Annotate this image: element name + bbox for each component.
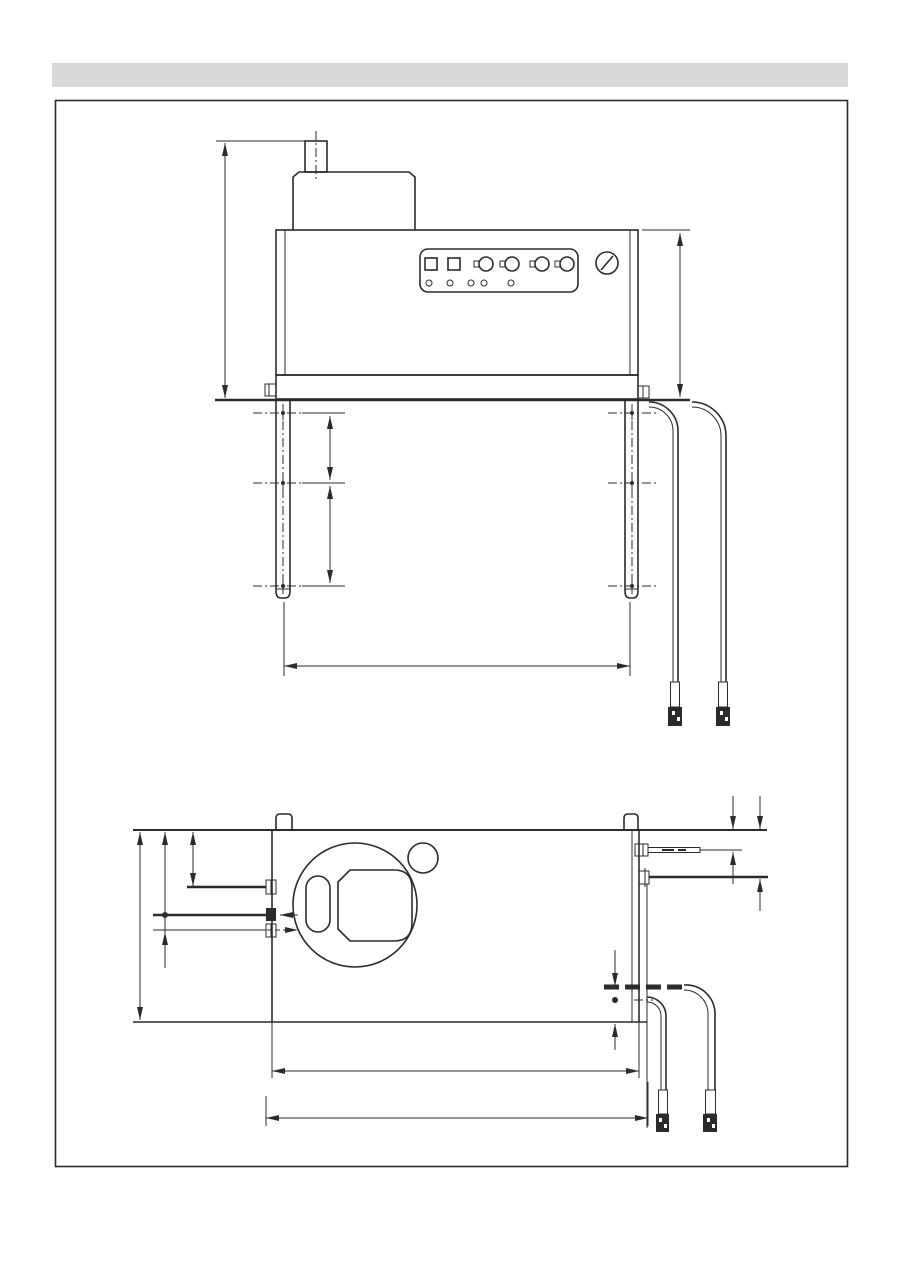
indicator-light-3 [468, 280, 474, 286]
leg-right [625, 400, 638, 598]
hose-ferrule [671, 682, 680, 707]
center-mark [253, 406, 345, 420]
hose-2 [692, 402, 730, 726]
square-button-1 [425, 258, 437, 270]
hose-connector [656, 1114, 669, 1132]
control-panel-outline [420, 249, 578, 292]
flue-duct [216, 131, 415, 230]
top-tab-left [276, 814, 292, 830]
screw-head [635, 844, 648, 856]
hose-connector [716, 707, 730, 726]
flue-collar [293, 172, 415, 230]
rotary-knob-1 [474, 257, 493, 271]
manual-page [0, 0, 900, 1273]
rotary-knob-4 [555, 257, 574, 271]
dimension-lines-plan-left [140, 832, 193, 1020]
center-mark [253, 476, 345, 490]
gauge-needle [601, 256, 613, 270]
indicator-light-2 [447, 280, 453, 286]
front-elevation-view [215, 131, 730, 726]
hose-connector [668, 707, 682, 726]
burner-inner-opening [338, 870, 412, 941]
hose-ferrule [719, 682, 728, 707]
left-connections [153, 880, 298, 937]
plan-outline [133, 814, 767, 1128]
side-fitting-left [265, 384, 276, 396]
top-tab-right [624, 814, 638, 830]
burner-slot [306, 876, 330, 932]
leg-left [276, 400, 290, 598]
indicator-light-1 [426, 280, 432, 286]
body-outline [276, 230, 638, 375]
indicator-light-4 [481, 280, 487, 286]
round-gauge [596, 252, 618, 274]
header-bar [52, 63, 848, 87]
right-connections [635, 796, 768, 911]
rotary-knob-2 [500, 257, 519, 271]
hose-ferrule [659, 1090, 668, 1114]
rotary-knob-3 [530, 257, 549, 271]
center-mark [608, 406, 658, 420]
right-fitting [639, 871, 649, 884]
control-panel [420, 249, 578, 292]
dim-dot-terminator [612, 997, 618, 1003]
plan-view [133, 796, 768, 1132]
leg-center-marks [253, 406, 658, 593]
base-band [276, 375, 638, 399]
square-button-2 [448, 258, 460, 270]
burner-assembly [293, 843, 438, 967]
hose-connector [703, 1114, 717, 1132]
center-mark [608, 579, 658, 593]
connection-fitting-b [266, 908, 276, 921]
indicator-light-5 [508, 280, 514, 286]
dimension-hose-offsets [612, 950, 618, 1050]
drawing-frame [56, 101, 848, 1167]
dimension-lines-front [225, 143, 690, 676]
technical-drawing [0, 0, 900, 1273]
center-mark [608, 476, 658, 490]
machine-body [265, 230, 649, 399]
center-mark [253, 579, 345, 593]
burner-ring [293, 843, 417, 967]
hose-1 [649, 402, 682, 726]
dimension-lines-plan-bottom [266, 1022, 648, 1126]
small-port-circle [408, 843, 438, 873]
hose-ferrule [706, 1090, 716, 1114]
